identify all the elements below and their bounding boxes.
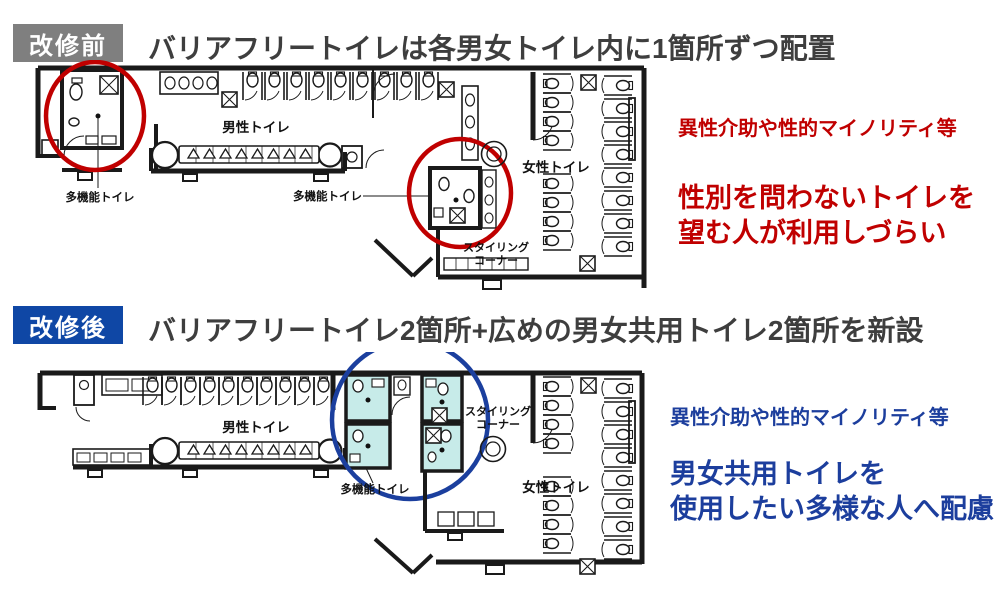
- badge-before: 改修前: [13, 24, 123, 62]
- note-big-after-line1: 男女共用トイレを: [670, 457, 994, 492]
- label-womens-before: 女性トイレ: [522, 159, 590, 175]
- note-big-before-line2: 望む人が利用しづらい: [678, 216, 975, 251]
- womens-area-after: [533, 375, 635, 574]
- mens-area-before: 男性トイレ: [151, 72, 438, 181]
- label-styling2-after: コーナー: [476, 418, 520, 431]
- note-big-before-line1: 性別を問わないトイレを: [678, 181, 975, 216]
- heading-after: バリアフリートイレ2箇所+広めの男女共用トイレ2箇所を新設: [148, 309, 924, 349]
- escalator-mark-after: [375, 539, 432, 573]
- label-mens-after: 男性トイレ: [222, 419, 290, 435]
- new-toilet-rooms: [346, 375, 462, 483]
- label-multi-after: 多機能トイレ: [341, 482, 410, 496]
- mens-area-after: 男性トイレ: [73, 375, 345, 477]
- styling-corner-before: スタイリング コーナー: [444, 142, 529, 271]
- label-styling1-before: スタイリング: [463, 240, 529, 254]
- note-big-before: 性別を問わないトイレを 望む人が利用しづらい: [678, 181, 975, 251]
- label-styling1-after: スタイリング: [465, 404, 531, 418]
- floor-plan-before: 多機能トイレ 男性トイレ: [28, 60, 658, 300]
- floor-plan-after: 男性トイレ: [28, 352, 658, 597]
- escalator-mark: [375, 240, 432, 276]
- note-small-after: 異性介助や性的マイノリティ等: [670, 401, 949, 430]
- label-multi-left: 多機能トイレ: [66, 190, 135, 204]
- note-small-before: 異性介助や性的マイノリティ等: [678, 112, 957, 141]
- badge-after: 改修後: [13, 306, 123, 344]
- note-big-after-line2: 使用したい多様な人へ配慮: [670, 492, 994, 527]
- label-mens-before: 男性トイレ: [222, 119, 290, 135]
- note-big-after: 男女共用トイレを 使用したい多様な人へ配慮: [670, 457, 994, 527]
- label-womens-after: 女性トイレ: [522, 479, 590, 495]
- label-styling2-before: コーナー: [474, 254, 518, 267]
- label-multi-mid: 多機能トイレ: [293, 189, 362, 203]
- slide: 改修前 バリアフリートイレは各男女トイレ内に1箇所ずつ配置: [0, 0, 1000, 600]
